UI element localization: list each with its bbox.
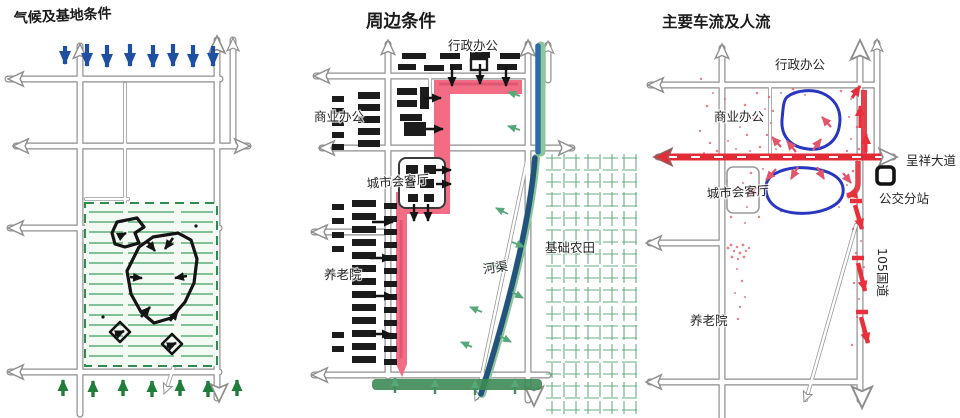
panel-title-surroundings: 周边条件 bbox=[366, 11, 436, 32]
pedestrian-loops bbox=[766, 91, 843, 214]
panel-traffic-diagram: 主要车流及人流 行政办公 商业办公 城市会客厅 养老院 呈祥大道 公交分站 10… bbox=[640, 0, 960, 418]
label-bus-substation: 公交分站 bbox=[879, 191, 929, 206]
panel-title-traffic: 主要车流及人流 bbox=[662, 12, 771, 31]
panel-climate-diagram: 气候及基地条件 bbox=[0, 0, 310, 418]
label-admin-office: 行政办公 bbox=[775, 57, 826, 72]
label-nursing-home: 养老院 bbox=[324, 267, 362, 282]
label-river: 河渠 bbox=[482, 258, 509, 276]
panel-surroundings-diagram: 周边条件 行政办公 商业办公 城市会客厅 养老院 河渠 基础农田 bbox=[310, 0, 640, 418]
site-area bbox=[85, 203, 217, 366]
label-nursing-home: 养老院 bbox=[690, 313, 728, 328]
wind-arrows bbox=[65, 44, 213, 67]
farmland-grid bbox=[546, 154, 638, 414]
label-admin-office: 行政办公 bbox=[448, 38, 499, 53]
label-national-highway: 105国道 bbox=[875, 248, 890, 297]
cool-air-arrows bbox=[63, 380, 237, 397]
panel-title-climate: 气候及基地条件 bbox=[12, 5, 112, 27]
bus-substation-icon bbox=[877, 167, 894, 184]
label-city-living-room: 城市会客厅 bbox=[706, 183, 769, 201]
label-commercial-office: 商业办公 bbox=[314, 109, 365, 124]
road-network bbox=[650, 43, 893, 418]
green-belt bbox=[372, 378, 542, 395]
label-avenue: 呈祥大道 bbox=[906, 153, 957, 168]
label-farmland: 基础农田 bbox=[545, 240, 595, 255]
planning-sketch-diagrams: 气候及基地条件 bbox=[0, 0, 960, 418]
label-commercial-office: 商业办公 bbox=[714, 109, 765, 124]
